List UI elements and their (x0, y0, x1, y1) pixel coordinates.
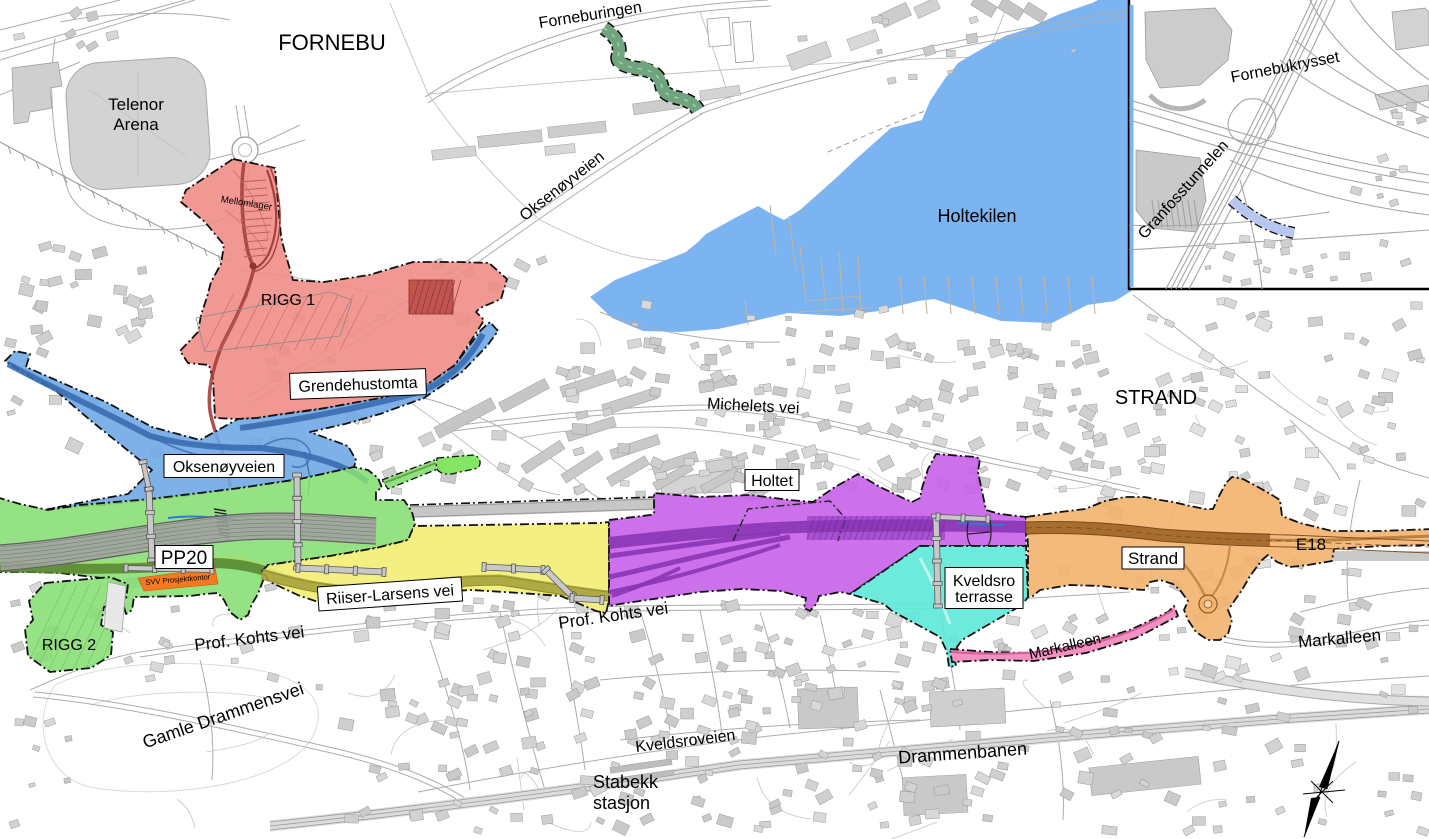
svg-text:Strand: Strand (1128, 549, 1178, 568)
svg-text:Holtekilen: Holtekilen (937, 206, 1016, 226)
svg-text:RIGG 1: RIGG 1 (261, 292, 315, 309)
svg-text:RIGG 2: RIGG 2 (42, 637, 96, 654)
svg-text:Holtet: Holtet (751, 473, 793, 490)
svg-text:stasjon: stasjon (593, 793, 650, 813)
svg-text:E18: E18 (1296, 535, 1326, 554)
svg-text:Telenor: Telenor (108, 95, 164, 114)
svg-text:Oksenøyveien: Oksenøyveien (173, 459, 275, 476)
svg-text:terrasse: terrasse (955, 589, 1013, 606)
svg-text:Stabekk: Stabekk (593, 772, 659, 792)
svg-text:Kveldsro: Kveldsro (953, 573, 1015, 590)
svg-text:Arena: Arena (113, 115, 159, 134)
svg-text:PP20: PP20 (161, 548, 207, 569)
svg-text:STRAND: STRAND (1115, 387, 1197, 409)
svg-text:FORNEBU: FORNEBU (278, 30, 386, 55)
